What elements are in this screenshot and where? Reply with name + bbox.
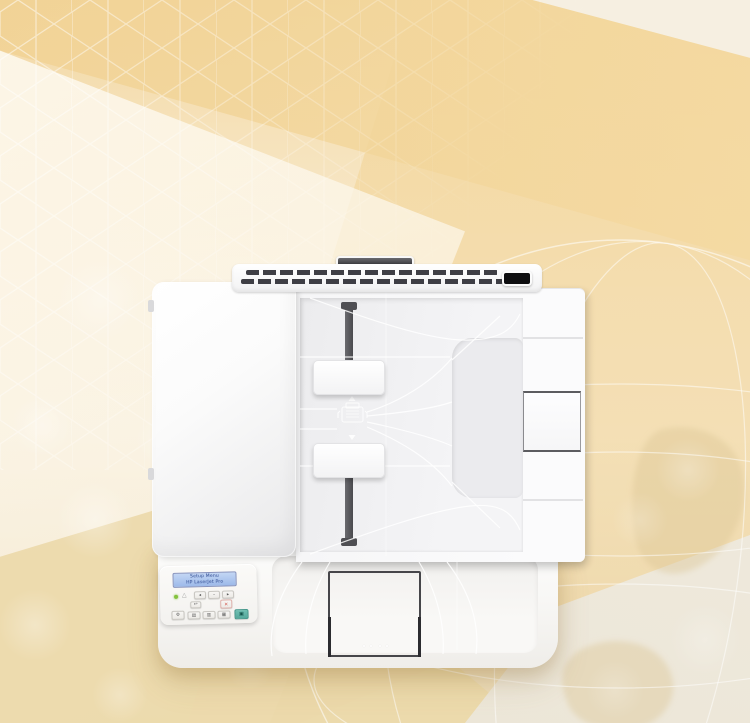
left-arrow-button: ◂ bbox=[194, 591, 206, 599]
tray-extension-stop bbox=[523, 391, 581, 452]
paper-guide-tab-bottom bbox=[313, 443, 385, 478]
copies-icon: ▦ bbox=[222, 612, 226, 617]
power-led bbox=[174, 595, 178, 599]
lcd-display: Setup Menu HP LaserJet Pro bbox=[172, 571, 236, 588]
start-copy-icon: ▣ bbox=[239, 611, 244, 617]
setup-button: ⚙ bbox=[171, 611, 184, 620]
rear-port bbox=[502, 271, 532, 286]
rail-end-cap-top bbox=[341, 302, 357, 310]
ok-icon: – bbox=[213, 592, 215, 597]
scanner-lid bbox=[152, 282, 296, 557]
back-button: ↩ bbox=[190, 601, 201, 608]
wrench-icon: ⚙ bbox=[176, 613, 180, 618]
stop-dot bbox=[370, 645, 372, 647]
vent-slots-row bbox=[246, 270, 498, 275]
stop-dot bbox=[386, 645, 388, 647]
copy-darkness-icon: ▥ bbox=[207, 612, 211, 617]
product-photo-stage: Setup Menu HP LaserJet Pro △ ◂ – ▸ ↩ × ⚙… bbox=[0, 0, 750, 723]
right-arrow-icon: ▸ bbox=[227, 592, 229, 597]
ok-button: – bbox=[208, 591, 220, 599]
rear-vent-strip bbox=[232, 264, 542, 292]
warning-icon: △ bbox=[182, 592, 187, 600]
back-icon: ↩ bbox=[194, 602, 198, 607]
rail-end-cap-bottom bbox=[341, 538, 357, 546]
cancel-x-icon: × bbox=[224, 601, 228, 607]
start-copy-button: ▣ bbox=[234, 609, 248, 619]
copies-button: ▦ bbox=[217, 610, 230, 618]
output-paper-stop bbox=[328, 571, 421, 657]
stop-dot bbox=[363, 645, 365, 647]
adf-output-slot bbox=[452, 338, 523, 498]
copy-darkness-button: ▥ bbox=[202, 611, 215, 619]
copy-menu-icon: ▤ bbox=[192, 613, 196, 618]
vent-slots-row bbox=[241, 279, 503, 284]
printer-control-panel: Setup Menu HP LaserJet Pro △ ◂ – ▸ ↩ × ⚙… bbox=[159, 564, 258, 626]
lid-hinge bbox=[148, 300, 154, 312]
lid-hinge bbox=[148, 468, 154, 480]
right-arrow-button: ▸ bbox=[222, 590, 234, 598]
cancel-button: × bbox=[220, 599, 232, 608]
lcd-line-2: HP LaserJet Pro bbox=[186, 579, 223, 586]
paper-guide-tab-top bbox=[313, 360, 385, 395]
stop-dot bbox=[379, 645, 381, 647]
copy-menu-button: ▤ bbox=[187, 611, 200, 619]
left-arrow-icon: ◂ bbox=[199, 593, 201, 598]
